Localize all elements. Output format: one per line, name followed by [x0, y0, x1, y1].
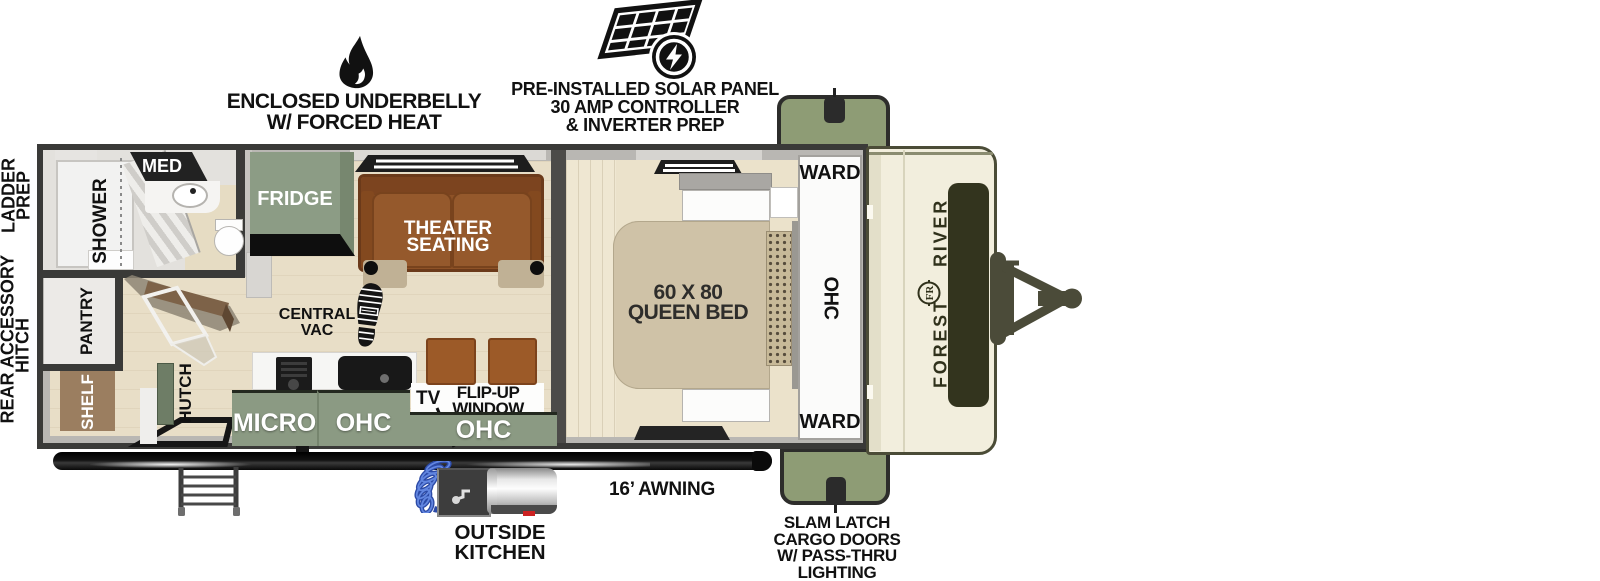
svg-text:FR: FR: [924, 285, 936, 301]
